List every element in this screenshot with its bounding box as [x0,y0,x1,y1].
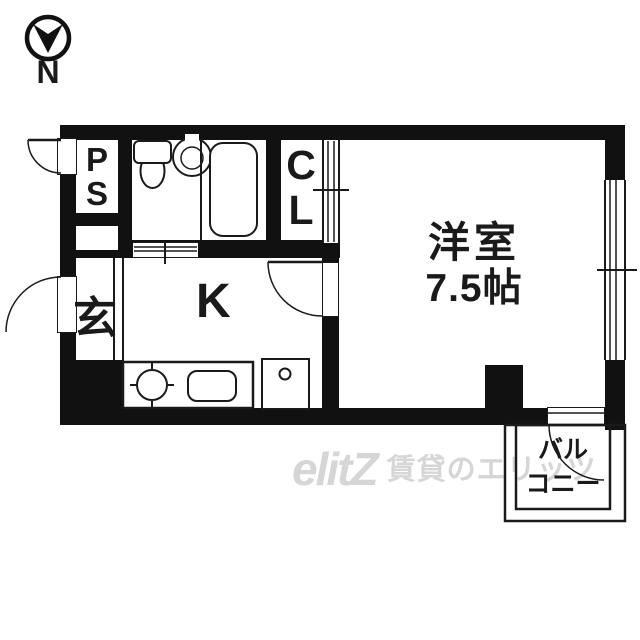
toilet-tank-icon [134,141,171,163]
compass-north-label: N [28,54,68,91]
bathtub-icon [210,143,257,236]
room-label-entrance: 玄 [72,282,118,346]
room-label-main: 洋室 7.5帖 [345,219,603,311]
main-room-size: 7.5帖 [345,267,603,311]
ps-door-arc [28,140,61,173]
closet-line1: C [280,143,322,188]
room-label-closet: C L [280,143,322,233]
washbasin-icon [173,138,211,176]
balcony-line1: バル [516,433,610,467]
closet-line2: L [280,188,322,233]
floorplan: elitZ 賃貸のエリッツ [0,0,640,640]
washer-space-icon [262,359,309,409]
washbasin-notch [185,134,199,142]
washer-tap-icon [280,369,291,380]
kitchen-sink-icon [188,371,236,401]
ps-line1: P [76,143,118,177]
main-room-name: 洋室 [345,219,603,267]
kitchen-door-arc [268,262,322,316]
compass-icon [27,17,69,59]
room-label-ps: P S [76,143,118,211]
balcony-line2: コニー [516,467,610,501]
stove-icon [137,370,167,400]
room-label-kitchen: K [196,274,231,329]
ps-line2: S [76,177,118,211]
entrance-door-arc [6,277,61,332]
room-label-balcony: バル コニー [516,433,610,501]
